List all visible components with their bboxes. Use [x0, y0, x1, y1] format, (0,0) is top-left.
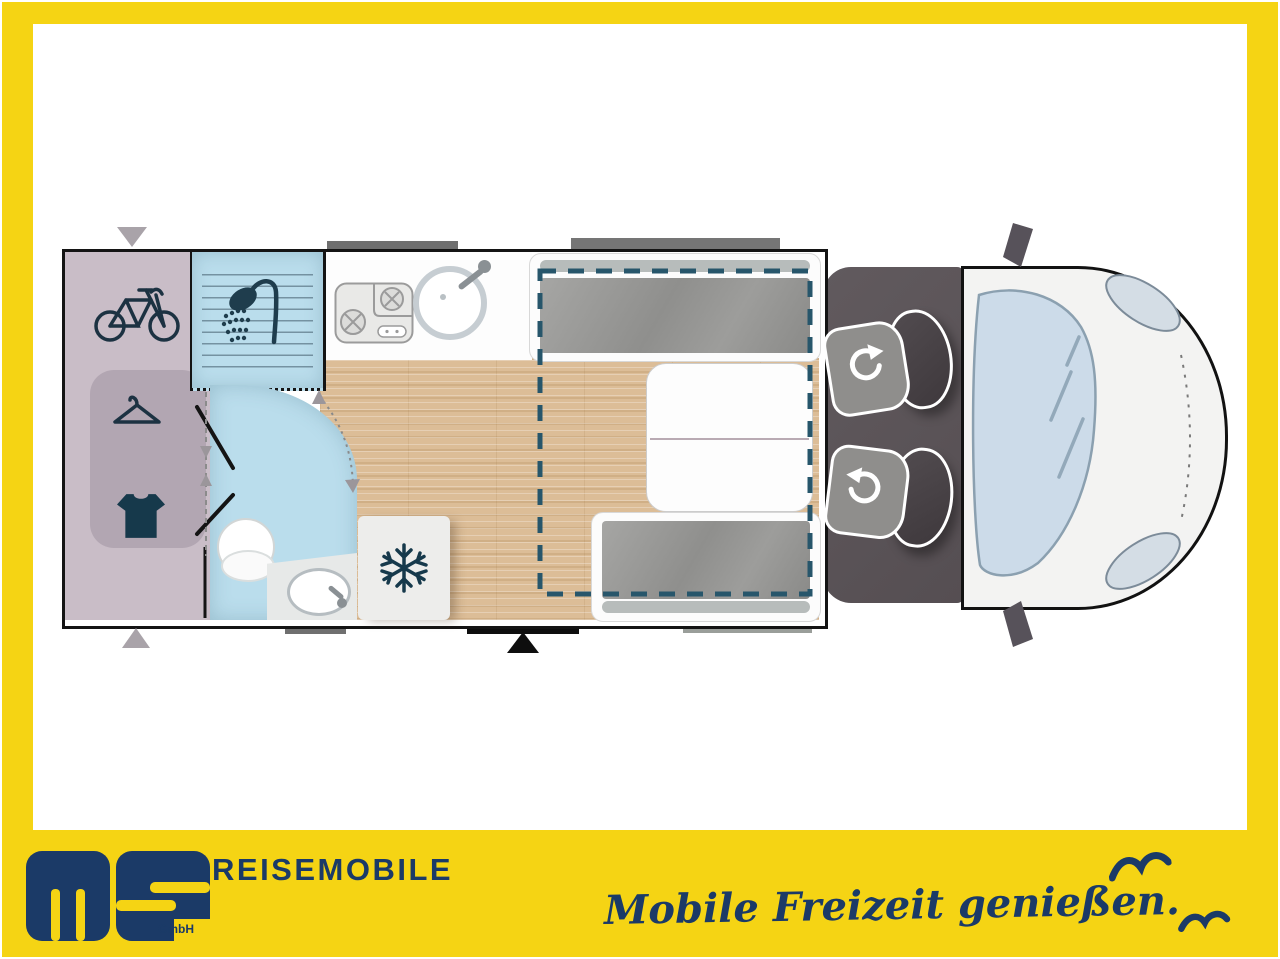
- bench-headrest: [540, 260, 810, 272]
- logo-gmbh: GmbH: [158, 922, 194, 936]
- swivel-seat-driver: [821, 437, 959, 556]
- stove-icon: [334, 282, 414, 344]
- bird-icon: [1175, 904, 1234, 941]
- entry-arrow: [507, 632, 539, 653]
- kitchen-counter: [320, 252, 532, 360]
- bench-cushion: [540, 278, 810, 353]
- snowflake-icon: [377, 541, 431, 595]
- faucet-knob: [478, 260, 491, 273]
- garage-door-arrow: [122, 628, 150, 648]
- hanger-icon: [111, 388, 163, 428]
- bench-cushion: [602, 521, 810, 599]
- dinette-bench-rear: [529, 253, 821, 362]
- shower-cabin: [190, 252, 326, 391]
- rear-garage: [65, 252, 210, 620]
- bathroom-sink: [287, 568, 351, 616]
- floorplan-habitat: [62, 249, 828, 629]
- rear-door-arrow: [117, 227, 147, 247]
- tshirt-icon: [117, 492, 165, 540]
- seat-cushion: [822, 443, 912, 542]
- slogan: Mobile Freizeit genießen.: [604, 877, 1181, 934]
- toilet-base: [221, 550, 275, 582]
- brand-name: REISEMOBILE: [212, 852, 453, 888]
- dinette-bench-front: [591, 512, 821, 622]
- van-body: [961, 266, 1228, 610]
- fridge: [358, 516, 450, 620]
- sink-drain: [440, 294, 446, 300]
- mirror-icon: [1003, 223, 1033, 267]
- swivel-arrow-icon: [840, 341, 890, 391]
- bench-headrest: [602, 601, 810, 613]
- shower-icon: [218, 276, 296, 366]
- table-divider: [650, 438, 809, 440]
- swivel-arrow-icon: [841, 464, 890, 513]
- seat-cushion: [821, 318, 914, 419]
- screenshot-page: GmbH REISEMOBILE Mobile Freizeit genieße…: [0, 0, 1280, 959]
- bathroom-faucet-knob: [337, 598, 347, 608]
- dinette-table: [646, 363, 813, 512]
- swivel-seat-passenger: [820, 305, 961, 427]
- bicycle-icon: [93, 278, 181, 344]
- footer-banner: GmbH REISEMOBILE Mobile Freizeit genieße…: [0, 830, 1280, 959]
